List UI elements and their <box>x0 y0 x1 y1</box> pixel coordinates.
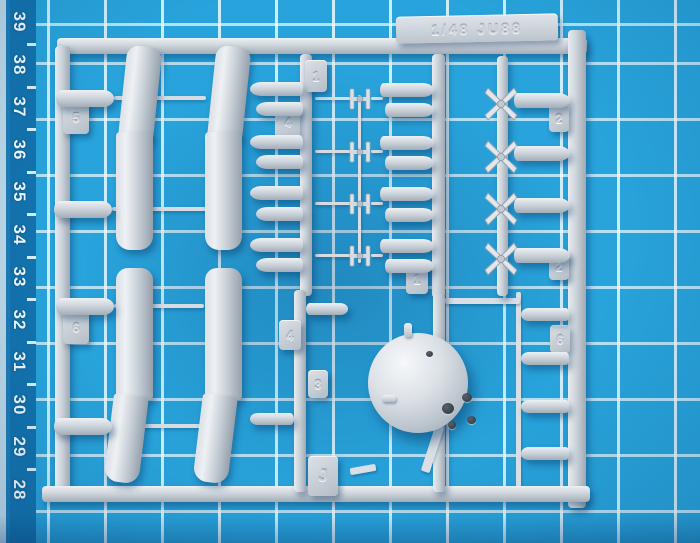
dome-hole <box>467 416 476 424</box>
bomb-part <box>385 103 434 117</box>
bomb-part <box>514 93 570 108</box>
bomb-fin-x-part <box>484 139 518 175</box>
bomb-part <box>256 155 303 169</box>
bomb-part <box>380 187 434 201</box>
dome-hole <box>462 393 472 402</box>
part-number-tab: 4 <box>279 320 301 350</box>
bomb-part <box>256 102 303 116</box>
fin-brace-part <box>348 245 372 267</box>
bomb-part <box>380 83 434 97</box>
bomb-part <box>256 207 303 221</box>
sprue-connector-lower-right <box>445 298 520 304</box>
part-number-tab: 1 <box>305 60 327 92</box>
dome-hole <box>448 421 456 429</box>
dome-hole <box>442 403 454 414</box>
bullet-part <box>521 447 569 460</box>
bomb-part <box>385 259 434 273</box>
part-number-tab: 3 <box>308 370 328 398</box>
sprue-title-text: 1/48 JU88 <box>431 20 523 38</box>
part-number-tab: 6 <box>63 310 89 344</box>
sprue-title-tab: 1/48 JU88 <box>396 13 559 43</box>
small-cylinder-part <box>306 303 348 315</box>
dome-nub <box>404 323 412 337</box>
bullet-part <box>521 400 569 413</box>
bomb-part <box>250 135 303 149</box>
dome-nub <box>382 395 396 402</box>
bomb-part <box>385 156 434 170</box>
small-cylinder-part <box>250 413 294 425</box>
sprue-letter-tab: J <box>308 456 338 496</box>
bomb-part <box>380 239 434 253</box>
torpedo-part <box>54 418 112 435</box>
fin-brace-part <box>348 193 372 215</box>
bullet-part <box>521 308 569 321</box>
fin-brace-part <box>348 88 372 110</box>
nacelle-part <box>205 268 242 400</box>
bomb-part <box>256 258 303 272</box>
dome-hole <box>426 351 433 357</box>
part-number-tab: 2 <box>549 104 569 132</box>
cowling-dome-part <box>368 333 468 433</box>
bomb-fin-x-part <box>484 241 518 277</box>
bomb-part <box>385 208 434 222</box>
fin-brace-part <box>348 141 372 163</box>
nacelle-part <box>116 132 153 250</box>
bomb-fin-x-part <box>484 86 518 122</box>
photo-model-kit-sprue: 39 38 37 36 35 34 33 32 31 30 29 28 1/48… <box>0 0 700 543</box>
nacelle-part <box>205 132 242 250</box>
part-number-tab: 6 <box>550 325 570 353</box>
bomb-part <box>250 82 303 96</box>
bomb-part <box>250 238 303 252</box>
bomb-fin-x-part <box>484 191 518 227</box>
sprue-runner-lower-right-thin <box>516 292 521 492</box>
nacelle-part <box>116 268 153 400</box>
bomb-part <box>514 146 570 161</box>
bomb-part <box>250 186 303 200</box>
torpedo-part <box>56 298 114 315</box>
bomb-part <box>514 198 570 213</box>
bomb-part <box>380 136 434 150</box>
bomb-part <box>514 248 570 263</box>
bullet-part <box>521 352 569 365</box>
sprue-right-rail <box>568 30 586 508</box>
torpedo-part <box>56 90 114 107</box>
torpedo-part <box>54 201 112 218</box>
